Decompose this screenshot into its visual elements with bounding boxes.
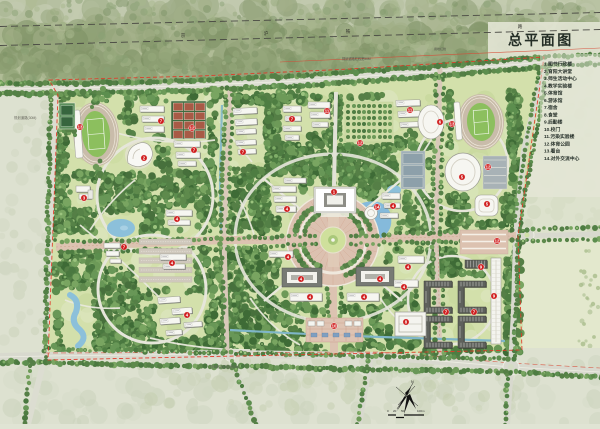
svg-text:铁: 铁 [346,28,351,35]
svg-text:规划道路红线宽50M: 规划道路红线宽50M [342,56,371,61]
svg-text:沪: 沪 [264,30,269,37]
svg-text:路: 路 [518,23,523,30]
svg-text:京: 京 [181,32,186,39]
svg-text:用地红线: 用地红线 [434,46,446,51]
